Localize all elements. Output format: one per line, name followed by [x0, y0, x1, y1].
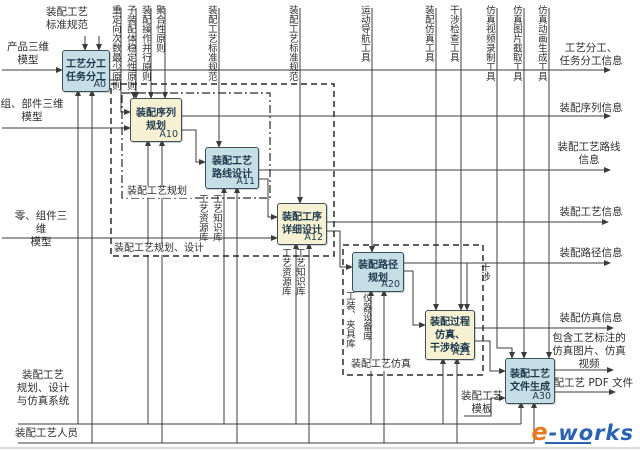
connector-a20-a21 [402, 271, 425, 325]
mech-fixture-lib: 工装、夹具库 [343, 291, 354, 348]
ctrl-sim-animation-tool: 仿真动画生成工具 [535, 5, 546, 81]
connector-a10-a11 [180, 130, 205, 162]
output-route-info: 装配工艺路线 信息 [548, 141, 630, 167]
input-assembly-part-3d-model: 组、部件三维 模型 [0, 98, 64, 124]
output-pdf-file: 装配工艺 PDF 文件 [543, 377, 639, 390]
ctrl-interference-check-tool: 干涉检查工具 [447, 5, 458, 62]
activity-A12: 装配工序 详细设计A12 [277, 203, 327, 245]
output-task-division-info: 工艺分工、 任务分工信息 [546, 42, 636, 68]
ctrl-assembly-sim-tool: 装配仿真工具 [422, 5, 433, 62]
input-product-3d-model: 产品三维 模型 [2, 41, 54, 67]
mech-personnel: 装配工艺人员 [15, 427, 81, 440]
mech-resource-lib-a11: 工艺资源库 [196, 194, 207, 242]
activity-A11-tag: A11 [236, 176, 255, 187]
activity-A30-tag: A30 [532, 391, 551, 402]
output-path-info: 装配路径信息 [550, 247, 632, 260]
mech-knowledge-lib-a12: 工艺知识库 [293, 248, 304, 296]
connector-a12-a20 [325, 231, 352, 267]
mech-knowledge-lib-a11: 工艺知识库 [210, 194, 221, 242]
mech-resource-lib-a12: 工艺资源库 [279, 248, 290, 296]
connector-a21-a30 [473, 341, 505, 371]
input-component-3d-model: 零、组件三维 模型 [10, 210, 72, 248]
output-annotated-media: 包含工艺标注的 仿真图片、仿真 视频 [543, 332, 635, 370]
ctrl-parallel-operation: 装配操作并行原则 [139, 5, 150, 81]
activity-A0: 工艺分工 任务分工A0 [62, 50, 110, 92]
label-interference: 干涉 [478, 262, 489, 281]
diagram-canvas: 装配工艺 标准规范产品三维 模型组、部件三维 模型零、组件三维 模型装配工艺规划… [0, 0, 640, 450]
activity-A10: 装配序列 规划A10 [130, 98, 182, 142]
mech-template: 装配工艺 模板 [460, 390, 504, 416]
activity-A20-tag: A20 [381, 279, 400, 290]
ctrl-subassembly-stability: 子装配体稳定性原则 [124, 5, 135, 91]
activity-A0-tag: A0 [93, 79, 106, 90]
activity-A30: 装配工艺 文件生成A30 [505, 358, 555, 404]
output-simulation-info: 装配仿真信息 [550, 312, 632, 325]
activity-A21-tag: A21 [452, 347, 471, 358]
ctrl-std-spec-a11: 装配工艺标准规范 [205, 5, 216, 81]
group-label-planning-design: 装配工艺规划、设计 [113, 243, 211, 255]
output-process-info: 装配工艺信息 [550, 206, 632, 219]
eworks-logo: e-works [531, 418, 634, 446]
ctrl-sim-video-tool: 仿真视频录制工具 [483, 5, 494, 81]
activity-A21: 装配过程 仿真、 干涉检查A21 [425, 310, 475, 360]
ctrl-sim-image-tool: 仿真图片截取工具 [510, 5, 521, 81]
activity-A12-tag: A12 [304, 232, 323, 243]
mech-equipment-lib: 仪器设备库 [360, 293, 371, 341]
activity-A20: 装配路径 规划A20 [352, 252, 404, 292]
ctrl-min-reorientation: 重定向次数最少原则 [109, 5, 120, 91]
eworks-logo-underline [545, 442, 591, 444]
group-label-process-planning: 装配工艺规划 [126, 186, 192, 198]
group-label-simulation: 装配工艺仿真 [350, 359, 418, 371]
activity-A11: 装配工艺 路线设计A11 [205, 147, 259, 189]
ctrl-std-spec-a12: 装配工艺标准规范 [286, 5, 297, 81]
mech-system: 装配工艺 规划、设计 与仿真系统 [12, 369, 74, 407]
activity-A10-tag: A10 [159, 129, 178, 140]
control-std-spec-a0: 装配工艺 标准规范 [40, 6, 94, 32]
ctrl-motion-nav-tool: 运动导航工具 [358, 5, 369, 62]
output-sequence-info: 装配序列信息 [550, 102, 632, 115]
ctrl-aggregation: 聚合性原则 [153, 5, 164, 53]
